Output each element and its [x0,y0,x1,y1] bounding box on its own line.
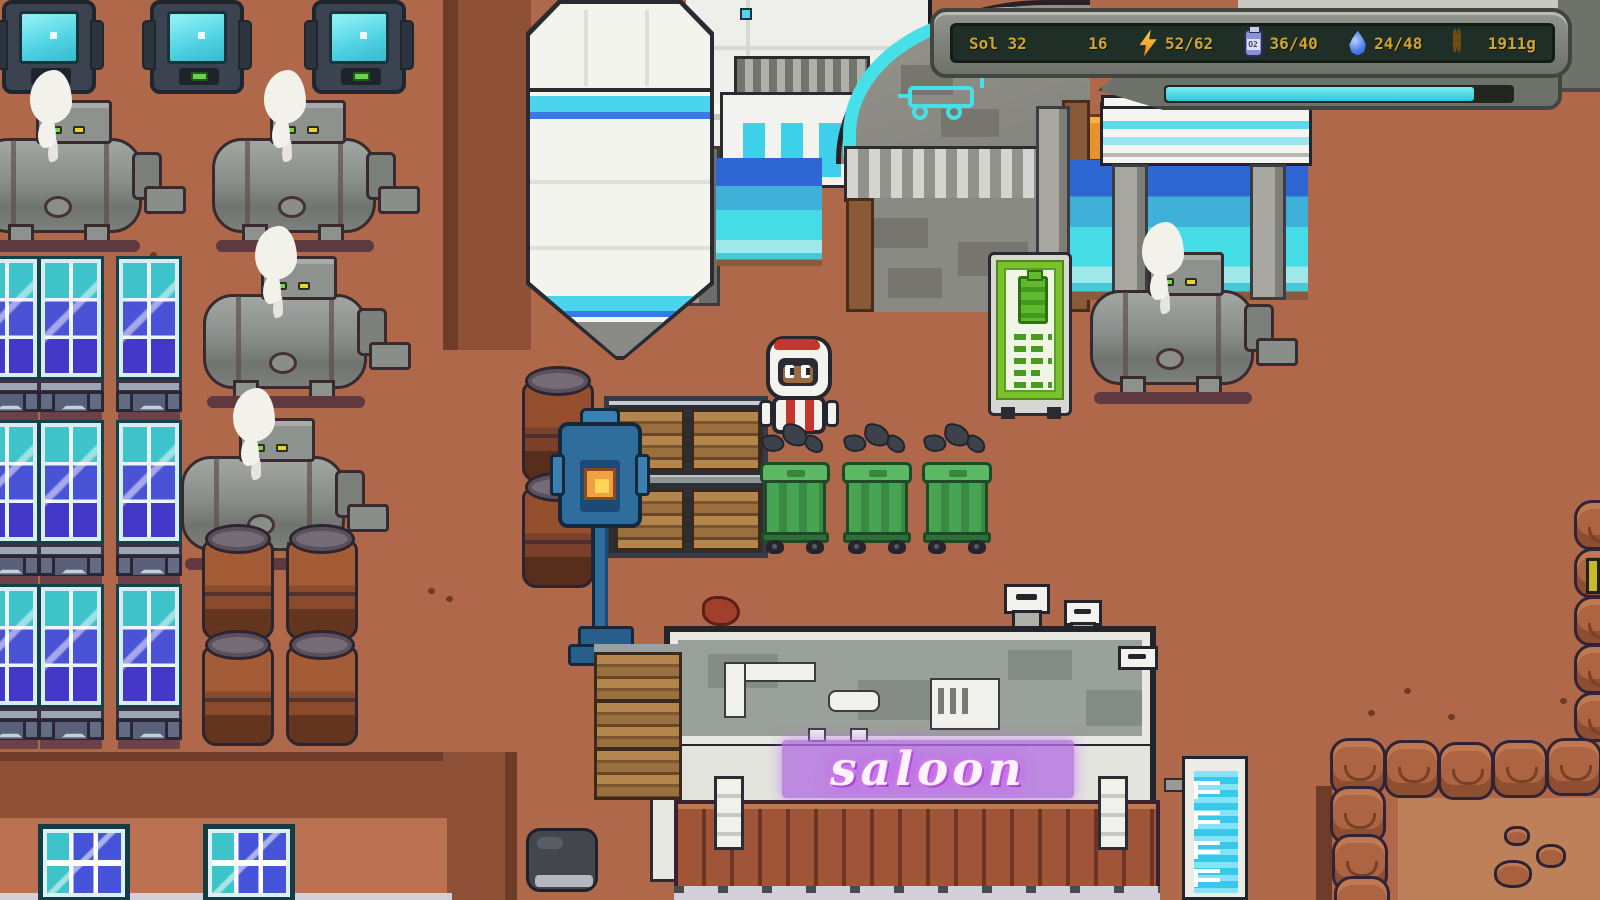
battery-charger[interactable] [312,0,406,94]
terrain-speck [446,596,453,602]
ledge-shadow [0,752,452,761]
steam-puff [255,226,297,280]
hud-screen: Sol 32 16 52/62 O2 36/40 24/48 1911g [950,23,1555,63]
saloon-building[interactable]: saloon [520,560,1280,900]
game-viewport: saloon [0,0,1600,900]
neon-rover-sign [898,78,998,126]
solar-panel[interactable] [38,256,104,422]
hud-resource-panel: Sol 32 16 52/62 O2 36/40 24/48 1911g [930,8,1572,78]
solar-panel[interactable] [0,256,40,422]
roof-pipe [828,690,880,712]
cutoff-machine [1586,558,1600,594]
planter-bin[interactable] [842,426,912,554]
road-shadow-2 [505,752,517,900]
wood-post [846,198,874,312]
pebble [1504,826,1530,846]
saloon-neon-sign[interactable]: saloon [782,740,1074,798]
oxygen-value: 36/40 [1270,34,1318,53]
resource-money: 1911g [1453,31,1536,55]
coins-icon [1453,31,1481,55]
terrain-speck [1448,714,1455,720]
terrain-speck [1404,688,1411,694]
solar-panel[interactable] [0,584,40,750]
solar-panel[interactable] [38,420,104,586]
pavilion-roof [1100,102,1312,166]
water-value: 24/48 [1374,34,1422,53]
resource-energy: 52/62 [1138,30,1213,57]
pool-water [716,158,822,266]
oxygen-canister-icon: O2 [1244,29,1263,57]
boulder [1574,500,1600,550]
money-value: 1911g [1488,34,1536,53]
charging-station-sign[interactable] [988,252,1072,416]
solar-panel[interactable] [116,584,182,750]
boulder [1546,738,1600,796]
planter-bin[interactable] [922,426,992,554]
boulder [1574,692,1600,742]
boulder [1492,740,1548,798]
resource-oxygen: O2 36/40 [1244,29,1318,57]
ledge-band [0,752,452,818]
energy-value: 52/62 [1165,34,1213,53]
lightning-bolt-icon [1138,30,1158,57]
terrain-speck [428,588,435,594]
solar-panel[interactable] [116,420,182,586]
colonists-value: 16 [1088,34,1107,53]
terrain-speck [1368,710,1375,716]
porch-pillar [714,776,744,850]
boulder [1438,742,1494,800]
status-led-yellow [73,126,85,134]
hud-progress-fill [1166,87,1474,101]
boulder [1334,876,1390,900]
saloon-sign-text: saloon [830,742,1026,797]
hud-top-strip [1238,0,1600,8]
solar-panel[interactable] [38,584,104,750]
steam-puff [1142,222,1184,276]
progress-track [1164,85,1514,103]
atmosphere-tank[interactable] [0,100,186,252]
battery-charger[interactable] [150,0,244,94]
battery-icon [1018,276,1048,324]
atmosphere-tank[interactable] [212,100,420,252]
water-drop-icon [1348,31,1367,56]
crate-stack[interactable] [594,748,682,800]
crate-stack[interactable] [594,700,682,750]
boulder [1574,596,1600,646]
roof-vent-box [930,678,1000,730]
skylight-window [203,824,295,900]
solar-panel[interactable] [116,256,182,422]
barrel-stack[interactable] [286,524,358,748]
boulder [1574,644,1600,694]
beacon-light [740,8,752,20]
skylight-window [38,824,130,900]
pebble [1536,844,1566,868]
oxygen-canister-label: O2 [1247,39,1260,50]
saloon-roof [664,626,1156,750]
status-led-green [50,126,62,134]
steam-puff [264,70,306,124]
neon-vertical-sign[interactable] [1182,756,1248,900]
storage-silo[interactable] [526,0,714,360]
planter-bin[interactable] [760,426,830,554]
solar-panel[interactable] [0,420,40,586]
resource-water: 24/48 [1348,31,1422,56]
sol-counter: Sol 32 [969,34,1027,53]
porch-awning [674,800,1160,892]
steam-puff [233,388,275,442]
pebble [1494,860,1532,888]
atmosphere-tank[interactable] [1090,252,1298,404]
roof-vent [1118,646,1158,670]
colonist-icon [1057,31,1081,55]
lamp-light [584,468,616,500]
barrel-stack[interactable] [202,524,274,748]
atmosphere-tank[interactable] [203,256,411,408]
resource-colonists: 16 [1057,31,1107,55]
crate-stack[interactable] [594,652,682,702]
porch-bottom-strip [674,886,1160,900]
player-astronaut[interactable] [764,336,838,438]
road-shadow [443,0,458,350]
dark-rock [526,828,598,892]
roof-pipe [724,662,746,718]
terrain-speck [1560,698,1567,704]
boulder [1384,740,1440,798]
porch-pillar [1098,776,1128,850]
steam-puff [30,70,72,124]
